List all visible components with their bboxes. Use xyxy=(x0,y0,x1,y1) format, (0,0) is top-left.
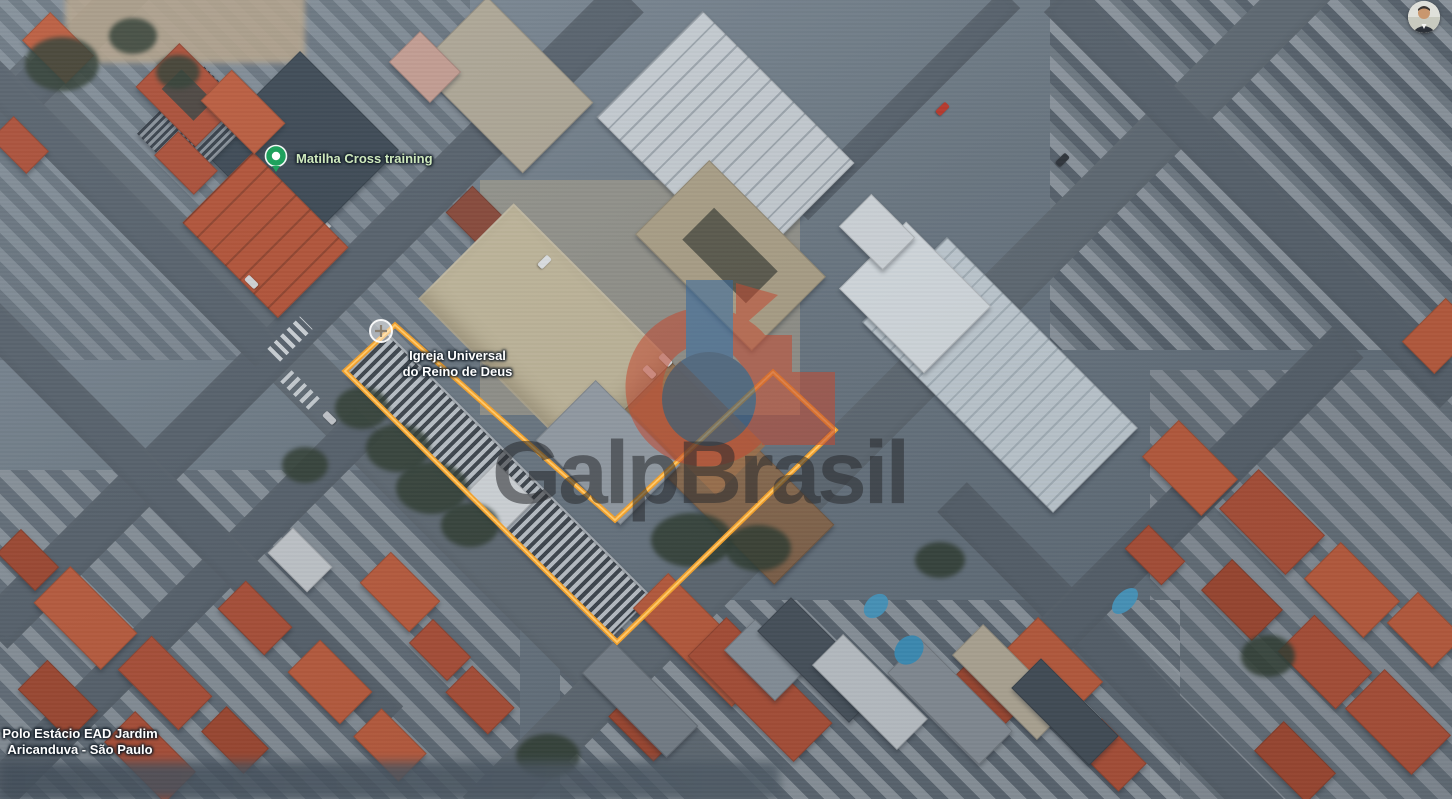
poi-gym-label: Matilha Cross training xyxy=(296,151,433,167)
poi-church-label[interactable]: Igreja Universal do Reino de Deus xyxy=(390,348,525,380)
poi-gym[interactable]: Matilha Cross training xyxy=(264,144,433,174)
poi-church-label-line1: Igreja Universal xyxy=(390,348,525,364)
poi-university-label-line2: Aricanduva - São Paulo xyxy=(2,742,158,758)
poi-church-label-line2: do Reino de Deus xyxy=(390,364,525,380)
poi-university-label-line1: Polo Estácio EAD Jardim xyxy=(2,726,158,742)
watermark-text: GalpBrasil xyxy=(492,421,907,524)
poi-university-label[interactable]: Polo Estácio EAD Jardim Aricanduva - São… xyxy=(2,726,158,758)
green-pin-icon xyxy=(264,144,288,174)
satellite-map[interactable]: Matilha Cross training Igreja Universal … xyxy=(0,0,1452,799)
user-avatar-photo-icon xyxy=(1408,1,1440,33)
user-avatar[interactable] xyxy=(1408,1,1440,33)
